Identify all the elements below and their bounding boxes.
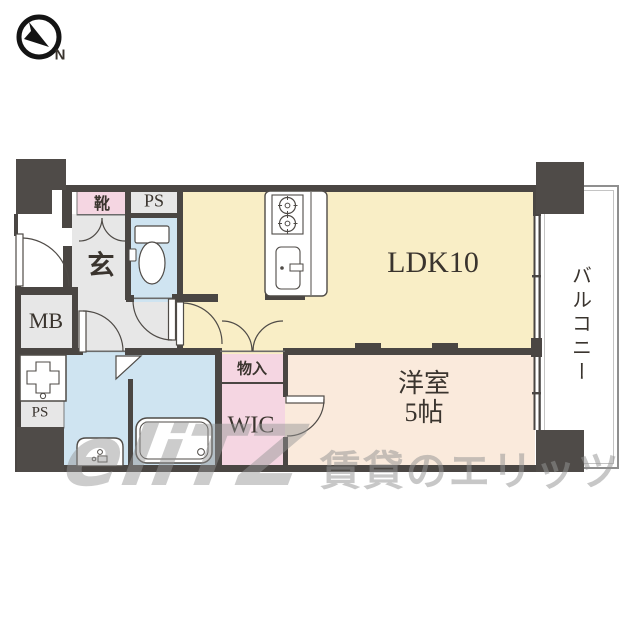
entrance-door-arc [23, 238, 69, 286]
western-room-door-leaf [286, 396, 324, 403]
pillar-top-right [536, 162, 584, 214]
label-western-room: 洋室 5帖 [398, 369, 450, 427]
washbasin-icon [77, 438, 123, 466]
ldk-floor [178, 189, 535, 354]
label-entrance: 玄 [88, 244, 115, 283]
sliding-door-leaf [355, 343, 381, 348]
hallway-floor [78, 298, 183, 352]
label-pipe-space-bottom: PS [32, 405, 49, 422]
floorplan-canvas: N [0, 0, 640, 640]
compass-north-label: N [55, 47, 66, 64]
pillar-bottom-left [17, 427, 64, 472]
kitchen-sink-icon [276, 247, 303, 289]
washroom-door-leaf [79, 311, 86, 352]
wall-ldk-western [283, 348, 535, 355]
label-storage: 物入 [237, 358, 267, 379]
bathtub-icon [136, 418, 212, 463]
label-ldk: LDK10 [387, 246, 479, 280]
toilet-door-leaf [169, 299, 176, 340]
pillar-bottom-right [536, 430, 584, 472]
sliding-door-leaf [432, 343, 458, 348]
kitchen-counter [265, 191, 327, 296]
washer-pan-icon [20, 355, 66, 401]
label-western-room-line1: 洋室 [398, 369, 450, 398]
label-balcony: バルコニー [566, 265, 595, 385]
ldk-door-leaf [177, 302, 184, 345]
stove-icon [272, 195, 303, 234]
label-western-room-line2: 5帖 [398, 398, 450, 427]
entrance-door-leaf [16, 234, 23, 286]
floorplan-drawing [0, 0, 640, 640]
label-meter-box: MB [29, 308, 63, 334]
label-shoes: 靴 [94, 190, 110, 214]
pillar-top-left [16, 159, 66, 214]
label-pipe-space-top: PS [144, 191, 164, 212]
label-wic: WIC [228, 413, 275, 440]
